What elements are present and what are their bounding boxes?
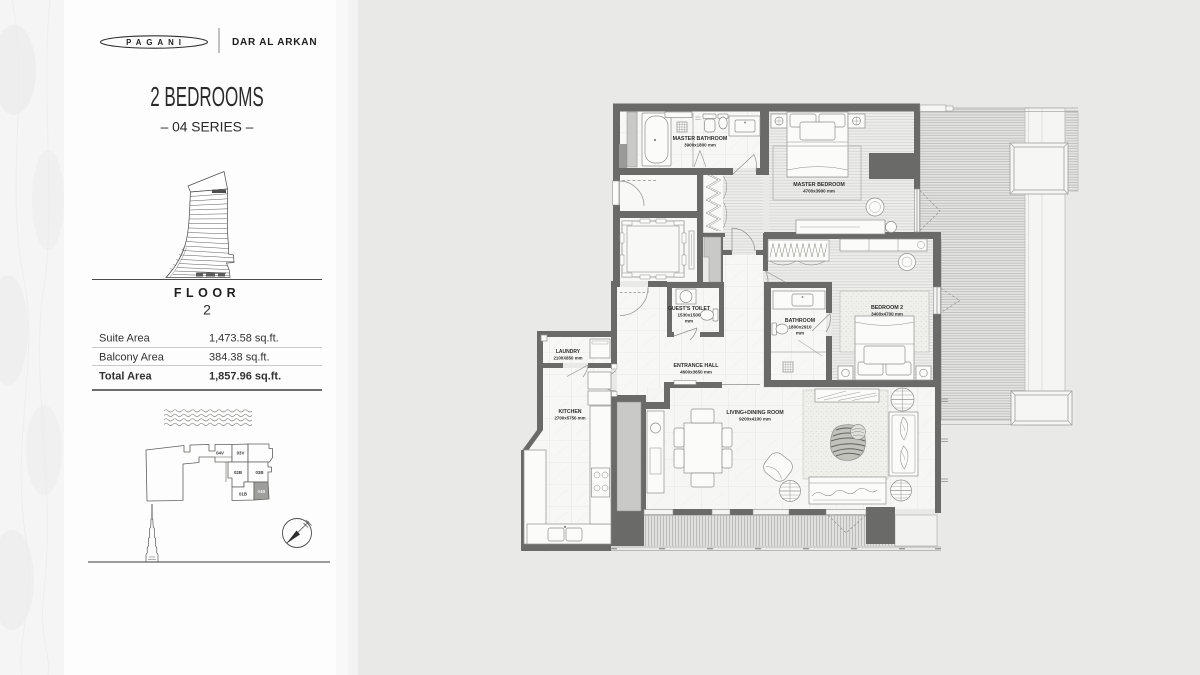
svg-text:KITCHEN: KITCHEN: [558, 409, 581, 415]
svg-text:1800x2910: 1800x2910: [789, 325, 812, 330]
svg-text:FLOOR: FLOOR: [174, 286, 240, 300]
svg-text:– 04 SERIES –: – 04 SERIES –: [161, 120, 254, 135]
svg-text:2100X850 mm: 2100X850 mm: [553, 356, 582, 361]
svg-text:GUEST'S TOILET: GUEST'S TOILET: [668, 306, 711, 312]
svg-text:LIVING+DINING ROOM: LIVING+DINING ROOM: [726, 410, 784, 416]
svg-text:2 BEDROOMS: 2 BEDROOMS: [150, 81, 264, 112]
svg-text:2: 2: [203, 302, 211, 318]
svg-text:mm: mm: [796, 331, 804, 336]
svg-text:9200x4100 mm: 9200x4100 mm: [739, 417, 771, 422]
svg-text:Suite Area: Suite Area: [99, 333, 151, 345]
svg-text:1530x1500: 1530x1500: [678, 313, 701, 318]
svg-text:3900x1800 mm: 3900x1800 mm: [684, 143, 716, 148]
svg-text:04B: 04B: [258, 489, 266, 494]
svg-text:DAR AL ARKAN: DAR AL ARKAN: [232, 37, 317, 48]
svg-text:ENTRANCE HALL: ENTRANCE HALL: [673, 363, 719, 369]
svg-text:1,473.58 sq.ft.: 1,473.58 sq.ft.: [209, 333, 279, 345]
svg-text:3400x4700 mm: 3400x4700 mm: [871, 312, 903, 317]
svg-text:2700x5750 mm: 2700x5750 mm: [554, 416, 585, 421]
svg-text:MASTER BEDROOM: MASTER BEDROOM: [793, 182, 845, 188]
svg-text:01B: 01B: [239, 492, 247, 497]
svg-text:04V: 04V: [216, 451, 224, 456]
svg-text:BATHROOM: BATHROOM: [785, 318, 815, 324]
svg-text:BEDROOM 2: BEDROOM 2: [871, 305, 903, 311]
svg-text:mm: mm: [685, 319, 693, 324]
svg-text:1,857.96 sq.ft.: 1,857.96 sq.ft.: [209, 371, 281, 383]
svg-text:03B: 03B: [255, 470, 263, 475]
svg-text:MASTER BATHROOM: MASTER BATHROOM: [673, 136, 728, 142]
svg-text:Total Area: Total Area: [99, 371, 152, 383]
svg-text:03V: 03V: [237, 451, 245, 456]
svg-text:384.38 sq.ft.: 384.38 sq.ft.: [209, 352, 270, 364]
svg-text:4600x3650 mm: 4600x3650 mm: [680, 370, 712, 375]
svg-text:4700x3900 mm: 4700x3900 mm: [803, 189, 835, 194]
svg-text:Balcony Area: Balcony Area: [99, 352, 165, 364]
svg-text:PAGANI: PAGANI: [126, 38, 186, 47]
svg-text:02B: 02B: [234, 470, 242, 475]
svg-text:LAUNDRY: LAUNDRY: [556, 349, 581, 355]
